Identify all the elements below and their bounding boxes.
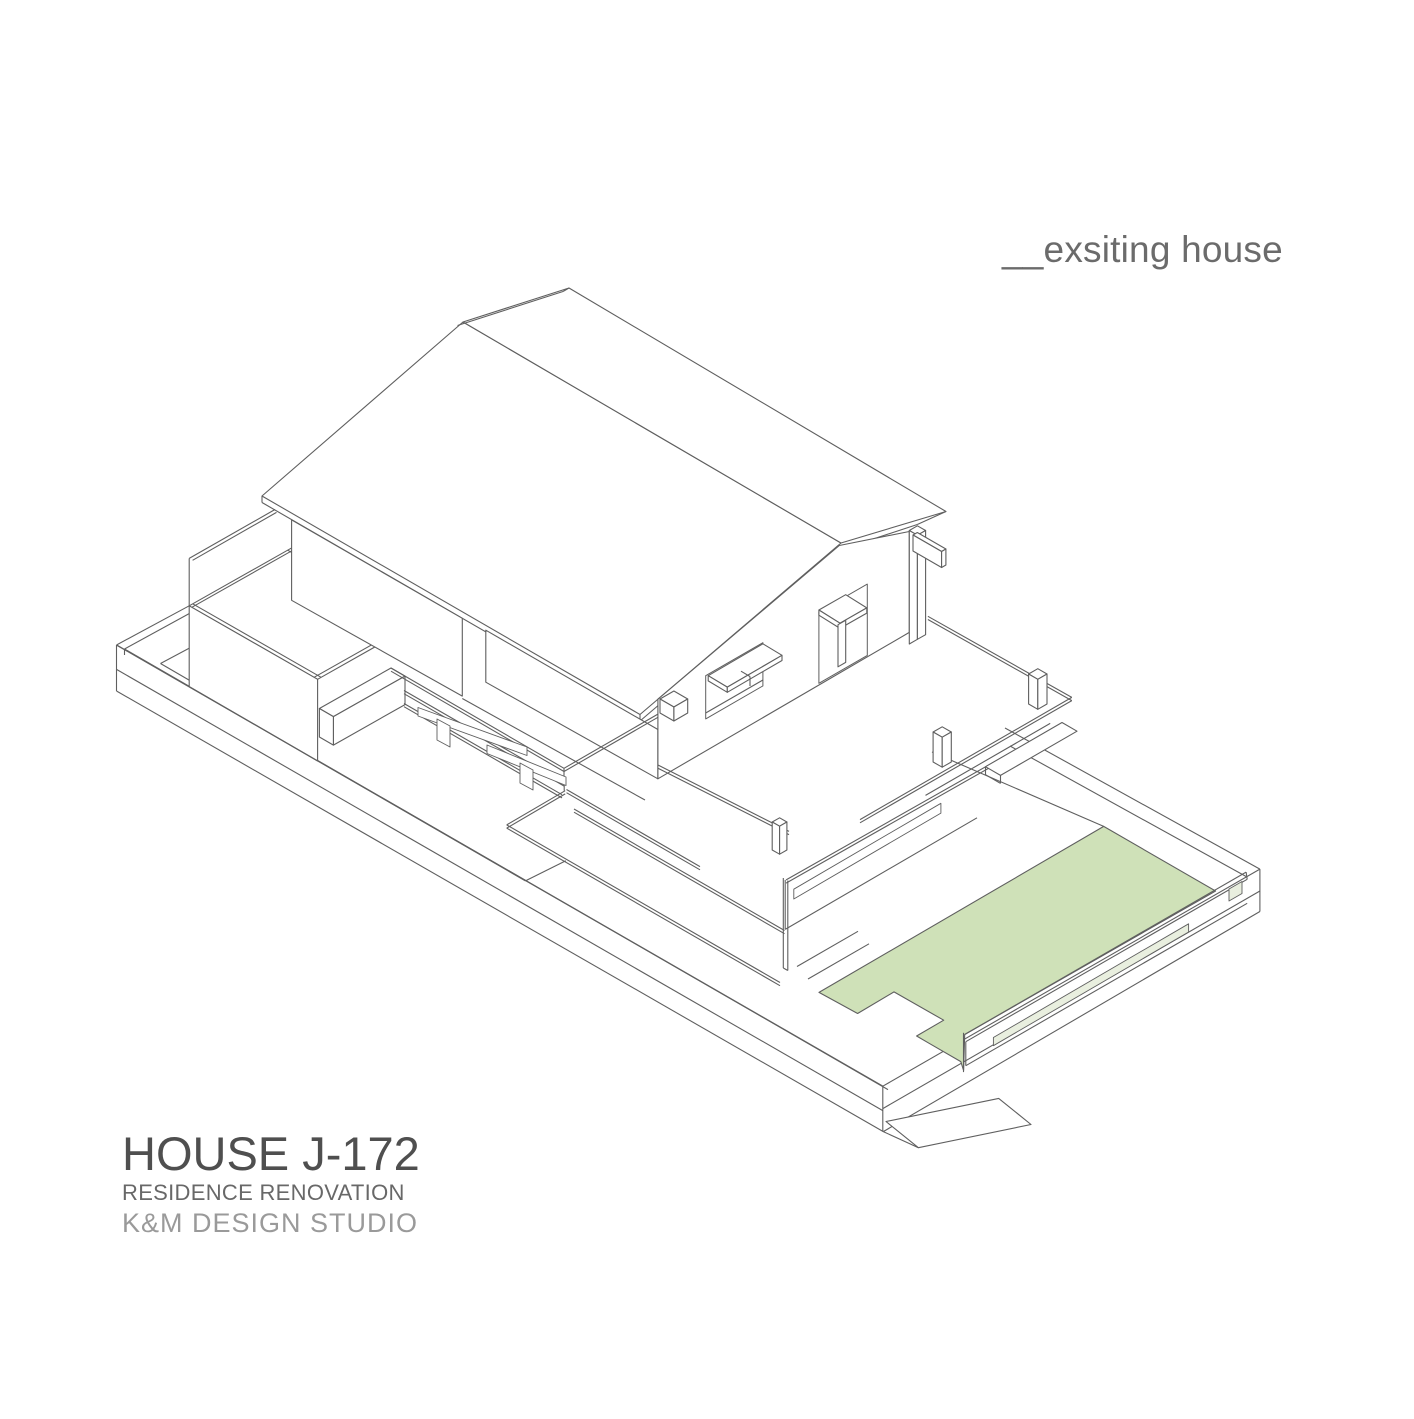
svg-text:K&M DESIGN STUDIO: K&M DESIGN STUDIO	[122, 1208, 418, 1238]
svg-text:HOUSE J-172: HOUSE J-172	[122, 1127, 420, 1180]
svg-text:RESIDENCE RENOVATION: RESIDENCE RENOVATION	[122, 1180, 405, 1205]
svg-text:__exsiting house: __exsiting house	[1001, 229, 1283, 270]
